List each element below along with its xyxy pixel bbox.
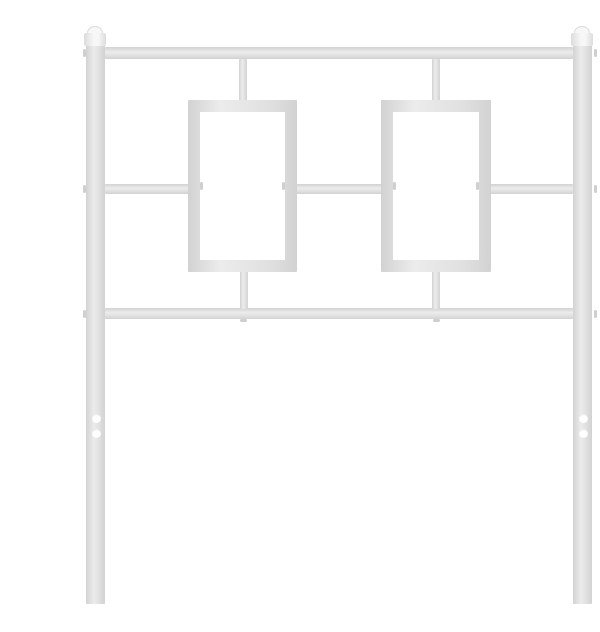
left-leg-mounting-hole-bottom	[92, 429, 101, 438]
right-leg-mounting-hole-top	[579, 414, 588, 423]
weld-mark-icon	[594, 310, 597, 318]
weld-mark-icon	[282, 182, 285, 190]
weld-mark-icon	[433, 319, 440, 322]
finial-cap-icon	[84, 33, 106, 46]
weld-mark-icon	[594, 49, 597, 57]
connector-stub-top-left	[239, 59, 247, 101]
connector-stub-bottom-right	[432, 270, 440, 309]
left-leg-mounting-hole-top	[92, 414, 101, 423]
left-post	[86, 43, 105, 604]
connector-stub-bottom-left	[240, 271, 248, 309]
right-rectangle-opening	[393, 112, 479, 260]
right-post	[573, 43, 592, 604]
left-finial	[84, 26, 106, 46]
weld-mark-icon	[240, 319, 247, 322]
left-rectangle-frame	[188, 100, 297, 272]
weld-mark-icon	[393, 182, 396, 190]
right-rectangle-frame	[381, 100, 491, 272]
finial-cap-icon	[571, 33, 593, 46]
headboard-product-photo	[40, 16, 600, 616]
top-rail	[105, 47, 573, 59]
weld-mark-icon	[476, 182, 479, 190]
right-finial	[571, 26, 593, 46]
connector-stub-top-right	[432, 59, 440, 101]
left-rectangle-opening	[200, 112, 285, 260]
middle-rail	[105, 184, 573, 194]
right-leg-mounting-hole-bottom	[579, 429, 588, 438]
bottom-rail	[105, 308, 573, 319]
weld-mark-icon	[594, 185, 597, 193]
weld-mark-icon	[200, 182, 203, 190]
